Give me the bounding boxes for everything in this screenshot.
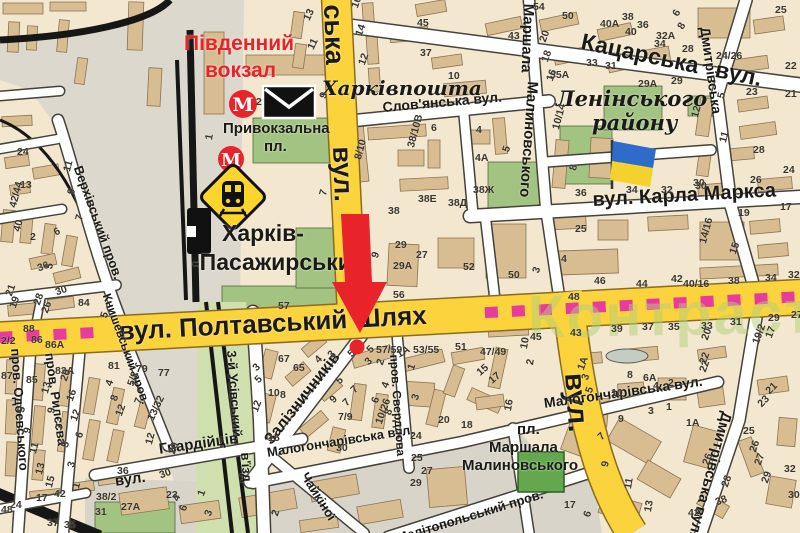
house-number: 14/16 [698, 217, 715, 245]
house-number: 32 [784, 464, 796, 475]
house-number: 38 [388, 206, 400, 217]
house-number: 16 [350, 0, 364, 10]
house-number: 36 [117, 466, 129, 477]
house-number: 17 [36, 493, 48, 504]
house-number: 4 [476, 125, 482, 136]
house-number: 6 [431, 123, 437, 134]
house-number: 12 [69, 408, 83, 423]
house-number: 17 [487, 370, 503, 386]
house-number: 11 [306, 37, 320, 52]
street-label: Маршала [489, 440, 558, 455]
house-number: 1А [686, 418, 699, 429]
house-number: 86А [45, 340, 64, 351]
house-number: 11 [623, 477, 635, 490]
house-number: 26 [40, 300, 54, 315]
house-number: 31 [605, 61, 617, 72]
city-map[interactable]: М М Контраст ПівденнийвокзалХарківпоштаП… [0, 0, 800, 533]
house-number: 10 [519, 336, 531, 349]
house-number: 65 [293, 363, 305, 374]
house-number: 11 [718, 130, 731, 143]
house-number: 19 [738, 208, 750, 219]
house-number: 46 [594, 276, 606, 287]
house-number: 2 [375, 358, 387, 367]
street-label: Малиновського [462, 458, 578, 473]
house-number: 27 [753, 452, 767, 467]
street-label: 3-й Усівський [225, 350, 244, 437]
house-number: 3 [363, 356, 375, 368]
house-number: 21 [764, 381, 780, 397]
house-number: 36 [575, 188, 587, 199]
house-number: 30 [695, 181, 707, 192]
house-number: 25 [575, 224, 587, 235]
house-number: 17 [564, 500, 576, 511]
house-number: 40/16 [683, 279, 709, 290]
house-number: 38 [714, 494, 729, 508]
house-number: 1 [71, 481, 83, 489]
house-number: 81 [108, 361, 120, 372]
house-number: 87 [1, 371, 13, 382]
house-number: 3 [410, 393, 422, 402]
street-label: ська [319, 4, 348, 65]
house-number: 30 [336, 443, 348, 454]
house-number: 30 [158, 467, 173, 481]
street-label: Книшевський пров. [101, 292, 152, 406]
house-number: 7 [349, 384, 361, 396]
house-number: 15 [728, 241, 742, 256]
house-number: 31 [730, 317, 742, 328]
house-number: 9 [46, 406, 58, 414]
house-number: 8 [627, 370, 633, 381]
house-number: 38Е [418, 194, 437, 205]
house-number: 24 [17, 147, 29, 158]
house-number: 10 [448, 71, 460, 82]
house-number: 6 [178, 504, 190, 513]
house-number: 32 [788, 270, 800, 281]
street-label: -Пасажирський [192, 251, 366, 274]
house-number: 5 [253, 374, 265, 386]
house-number: 5 [334, 375, 346, 387]
street-label: Верхівський пров. [72, 164, 125, 281]
house-number: 9 [600, 460, 611, 468]
house-number: 9 [370, 251, 382, 260]
house-number: 34 [765, 273, 777, 284]
house-number: 37 [642, 322, 654, 333]
house-number: 4 [653, 381, 659, 392]
house-number: 2 [270, 509, 282, 518]
house-number: 4 [313, 354, 325, 366]
house-number: 40 [12, 219, 25, 233]
house-number: 37 [47, 518, 59, 529]
house-number: 28 [720, 474, 734, 489]
street-label: вул. Карла Маркса [592, 180, 776, 210]
house-number: 4 [104, 379, 116, 388]
house-number: 27 [791, 310, 800, 321]
house-number: 2/2 [1, 336, 16, 347]
house-number: 3 [66, 460, 78, 468]
house-number: 28 [682, 44, 694, 55]
house-number: 3 [648, 406, 654, 417]
house-number: 8/10 [353, 138, 368, 160]
house-number: 9 [66, 187, 78, 195]
house-number: 20 [538, 29, 552, 44]
house-number: 6 [74, 431, 86, 440]
labels-layer: ПівденнийвокзалХарківпоштаПривокзальнапл… [0, 0, 800, 533]
house-number: 22 [698, 359, 712, 374]
house-number: 8 [676, 21, 688, 31]
house-number: 5 [60, 440, 72, 448]
house-number: 12 [690, 105, 703, 119]
house-number: 38 [622, 12, 634, 23]
house-number: 7 [596, 431, 608, 443]
street-label: вул. Полтавський Шлях [118, 302, 427, 344]
house-number: 48 [568, 292, 580, 303]
house-number: 52 [463, 262, 475, 273]
house-number: 24/26 [716, 51, 742, 62]
house-number: 47/49 [480, 347, 506, 358]
house-number: 35 [668, 322, 680, 333]
house-number: 14 [354, 23, 368, 38]
house-number: 1 [406, 363, 418, 372]
house-number: 20 [700, 327, 714, 342]
house-number: 29 [395, 240, 407, 251]
house-number: 17 [780, 202, 792, 213]
house-number: 8 [568, 163, 580, 171]
house-number: 43 [570, 328, 582, 339]
house-number: 25 [411, 453, 423, 464]
house-number: 35 [64, 520, 76, 531]
house-number: 5 [501, 145, 513, 154]
house-number: 50 [562, 11, 574, 22]
house-number: 11 [62, 159, 75, 172]
house-number: 40 [625, 27, 637, 38]
house-number: 36 [637, 20, 649, 31]
house-number: 7 [341, 397, 353, 409]
house-number: 2 [256, 97, 262, 108]
street-label: Чайкіної [299, 470, 339, 523]
house-number: 5 [346, 348, 358, 360]
house-number: 2 [30, 232, 36, 243]
house-number: 40А [600, 19, 619, 30]
house-number: 20 [438, 415, 450, 426]
house-number: 19 [8, 295, 22, 310]
house-number: 22 [785, 61, 797, 72]
house-number: 18 [461, 420, 473, 431]
house-number: 3 [531, 266, 543, 275]
house-number: 26 [750, 175, 762, 186]
house-number: 23 [746, 87, 758, 98]
house-number: 38Ж [473, 185, 494, 196]
house-number: 29А [393, 261, 412, 272]
house-number: 1 [204, 133, 215, 141]
house-number: 48 [1, 505, 13, 516]
house-number: 33 [586, 58, 598, 69]
house-number: 12 [250, 399, 264, 414]
house-number: 34 [654, 39, 666, 50]
street-label: пл. [264, 139, 287, 154]
house-number: 4 [561, 254, 567, 265]
street-label: Мелітопольський пров. [395, 487, 545, 533]
house-number: 21 [785, 89, 797, 100]
house-number: 29 [410, 478, 422, 489]
house-number: 1А [576, 355, 590, 371]
house-number: 24 [783, 165, 795, 176]
house-number: 7 [74, 213, 86, 221]
house-number: 51 [455, 342, 467, 353]
house-number: 6 [671, 8, 683, 18]
house-number: 38 [728, 276, 740, 287]
house-number: 27 [416, 250, 428, 261]
house-number: 7 [318, 188, 330, 196]
street-label: Маршала [519, 3, 536, 72]
house-number: 13 [643, 499, 655, 512]
house-number: 15 [44, 475, 57, 489]
house-number: 24 [410, 431, 422, 442]
street-label: Привокзальна [223, 121, 330, 136]
house-number: 56 [393, 290, 405, 301]
house-number: 45 [417, 18, 429, 29]
house-number: 25 [743, 426, 755, 437]
house-number: 86 [31, 335, 43, 346]
house-number: 77 [158, 368, 170, 379]
house-number: 10/14 [551, 103, 568, 131]
house-number: 12 [144, 432, 157, 446]
house-number: 8 [109, 394, 121, 403]
street-label: в'їзд [239, 452, 254, 482]
house-number: 9 [328, 394, 340, 406]
house-number: 27А [121, 502, 140, 513]
house-number: 50 [508, 270, 520, 281]
house-number: 10 [611, 388, 623, 399]
house-number: 38Д [448, 198, 467, 209]
house-number: 1 [196, 489, 208, 498]
house-number: 42 [688, 508, 700, 519]
house-number: 29 [768, 313, 780, 324]
house-number: 30 [788, 490, 800, 501]
street-label: Ленінського [556, 88, 707, 109]
house-number: 11 [28, 441, 41, 454]
house-number: 32 [661, 185, 673, 196]
house-number: 42 [671, 274, 683, 285]
house-number: 13 [40, 381, 53, 395]
house-number: 3 [251, 362, 263, 374]
house-number: 2 [668, 378, 674, 389]
house-number: 1 [666, 402, 672, 413]
house-number: 42/44 [8, 181, 25, 209]
house-number: 85 [26, 375, 38, 386]
house-number: 8 [280, 390, 286, 401]
house-number: 31 [95, 507, 107, 518]
house-number: 34 [626, 185, 638, 196]
street-label: району [592, 112, 677, 133]
house-number: 29 [671, 76, 683, 87]
house-number: 57 [278, 301, 290, 312]
house-number: 44 [636, 279, 648, 290]
house-number: 67 [278, 354, 290, 365]
house-number: 54 [533, 2, 545, 13]
street-label: Південний [184, 33, 294, 54]
house-number: 9 [618, 414, 624, 425]
street-label: пл. [517, 422, 540, 437]
house-number: 25 [775, 5, 787, 16]
house-number: 43 [508, 31, 520, 42]
house-number: 4 [171, 494, 183, 503]
house-number: 12 [357, 52, 371, 67]
house-number: 6 [582, 510, 594, 519]
house-number: 38/2 [96, 492, 116, 503]
house-number: 4А [475, 153, 488, 164]
house-number: 42 [54, 489, 66, 500]
house-number: 17 [764, 325, 778, 340]
house-number: 38/10В [406, 113, 425, 148]
house-number: 29А [638, 79, 657, 90]
house-number: 53/55 [413, 345, 439, 356]
house-number: 27 [421, 466, 433, 477]
house-number: 2 [525, 358, 536, 366]
house-number: 29 [760, 470, 774, 485]
house-number: 84 [78, 298, 90, 309]
house-number: 15 [268, 433, 280, 444]
house-number: 3 [203, 509, 215, 518]
house-number: 16 [503, 398, 515, 411]
house-number: 88 [23, 324, 35, 335]
house-number: 6 [52, 226, 62, 238]
house-number: 16 [65, 388, 79, 403]
house-number: 10 [268, 388, 280, 399]
street-label: Харків- [222, 222, 304, 245]
house-number: 5 [365, 344, 377, 356]
house-number: 2 [375, 283, 387, 292]
house-number: 23 [756, 394, 772, 410]
house-number: 37 [420, 48, 432, 59]
house-number: 30 [54, 284, 69, 298]
street-label: Малиновського [517, 81, 540, 198]
street-label: вокзал [205, 60, 276, 81]
house-number: 7/9 [338, 412, 353, 423]
house-number: 12 [114, 403, 128, 418]
house-number: 28 [753, 145, 765, 156]
house-number: 39 [611, 324, 623, 335]
house-number: 13 [302, 7, 316, 22]
house-number: 18 [540, 49, 554, 64]
